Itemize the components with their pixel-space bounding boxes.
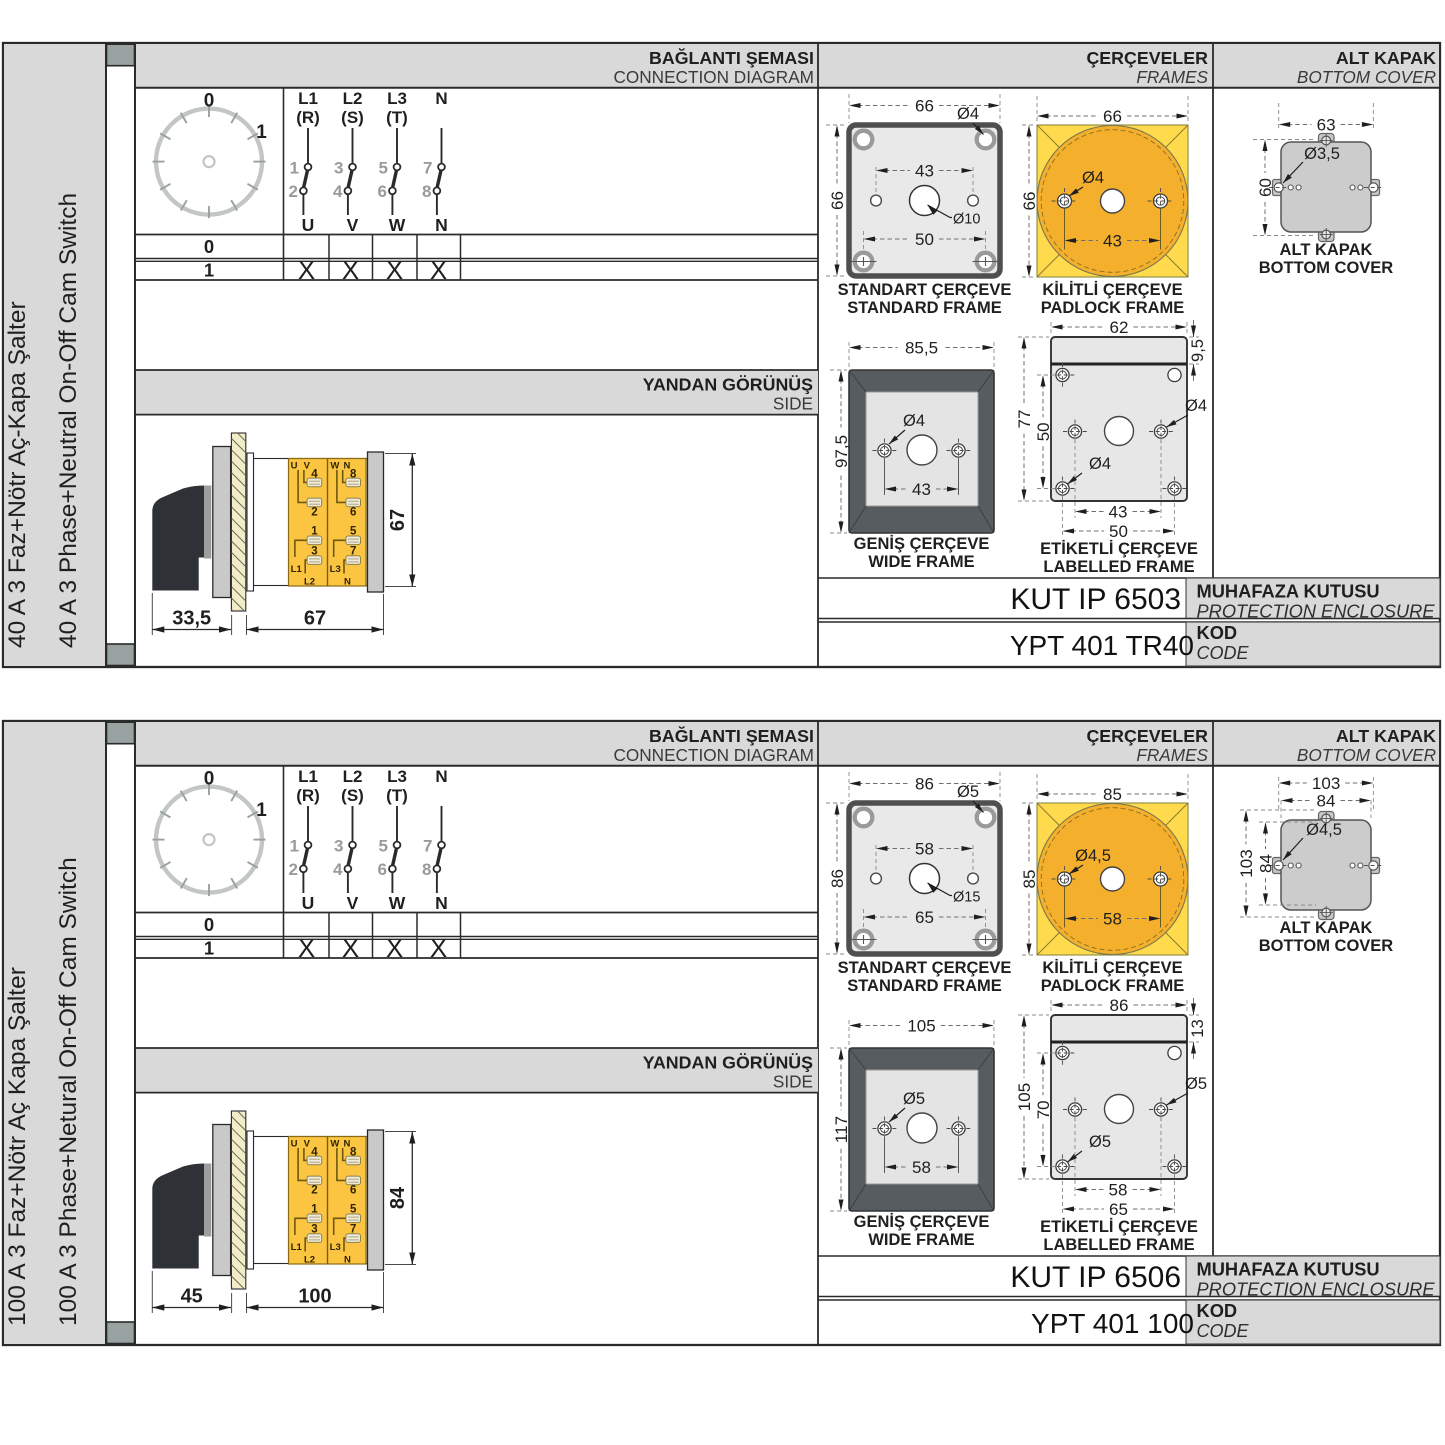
svg-text:(S): (S) [341, 108, 364, 127]
svg-text:U: U [302, 215, 315, 235]
svg-text:Ø4: Ø4 [1082, 169, 1104, 187]
svg-text:L3: L3 [330, 564, 341, 575]
svg-text:4: 4 [311, 1147, 318, 1159]
svg-text:66: 66 [915, 97, 934, 116]
svg-text:U: U [291, 1139, 298, 1150]
svg-text:Ø4,5: Ø4,5 [1075, 847, 1111, 865]
svg-text:L1: L1 [298, 89, 318, 108]
svg-text:70: 70 [1034, 1100, 1053, 1119]
svg-text:MUHAFAZA KUTUSU: MUHAFAZA KUTUSU [1197, 581, 1380, 602]
svg-text:105: 105 [907, 1017, 935, 1036]
svg-text:6: 6 [378, 860, 387, 879]
svg-text:L1: L1 [298, 767, 318, 786]
svg-text:KOD: KOD [1197, 622, 1238, 643]
svg-text:43: 43 [912, 480, 931, 499]
svg-text:3: 3 [311, 546, 317, 558]
svg-text:67: 67 [387, 509, 409, 531]
svg-text:X: X [386, 933, 403, 963]
svg-text:50: 50 [915, 230, 934, 249]
svg-text:BOTTOM COVER: BOTTOM COVER [1259, 937, 1394, 955]
svg-text:KİLİTLİ ÇERÇEVE: KİLİTLİ ÇERÇEVE [1042, 959, 1182, 977]
svg-text:L2: L2 [304, 1255, 315, 1266]
svg-text:8: 8 [350, 469, 357, 481]
svg-text:FRAMES: FRAMES [1136, 745, 1208, 765]
svg-text:58: 58 [912, 1158, 931, 1177]
svg-text:Ø10: Ø10 [953, 212, 980, 228]
svg-text:ALT KAPAK: ALT KAPAK [1280, 919, 1373, 937]
svg-text:V: V [304, 461, 311, 472]
svg-text:CONNECTION DIAGRAM: CONNECTION DIAGRAM [613, 745, 814, 765]
svg-text:5: 5 [379, 837, 388, 856]
svg-text:3: 3 [311, 1224, 317, 1236]
svg-text:MUHAFAZA KUTUSU: MUHAFAZA KUTUSU [1197, 1259, 1380, 1280]
svg-text:43: 43 [1103, 232, 1122, 251]
svg-text:40 A 3 Phase+Neutral On-Off Ca: 40 A 3 Phase+Neutral On-Off Cam Switch [55, 193, 82, 648]
svg-text:V: V [347, 893, 359, 913]
svg-text:6: 6 [350, 1185, 356, 1197]
svg-text:105: 105 [1015, 1083, 1034, 1111]
svg-text:WIDE FRAME: WIDE FRAME [868, 1231, 974, 1249]
svg-text:100 A 3 Faz+Nötr Aç Kapa Şalte: 100 A 3 Faz+Nötr Aç Kapa Şalter [4, 967, 31, 1326]
svg-text:8: 8 [350, 1147, 357, 1159]
svg-text:LABELLED FRAME: LABELLED FRAME [1043, 1236, 1194, 1254]
svg-text:84: 84 [387, 1186, 409, 1209]
svg-text:(R): (R) [296, 108, 320, 127]
svg-text:100: 100 [298, 1286, 331, 1308]
svg-text:1: 1 [290, 837, 299, 856]
svg-text:X: X [386, 255, 403, 285]
svg-text:N: N [435, 89, 447, 108]
svg-text:KİLİTLİ ÇERÇEVE: KİLİTLİ ÇERÇEVE [1042, 281, 1182, 299]
svg-text:8: 8 [422, 182, 431, 201]
svg-text:58: 58 [1109, 1181, 1128, 1200]
svg-text:ETİKETLİ ÇERÇEVE: ETİKETLİ ÇERÇEVE [1040, 540, 1198, 558]
svg-text:1: 1 [204, 260, 214, 281]
svg-text:X: X [342, 933, 359, 963]
svg-text:L2: L2 [343, 89, 363, 108]
svg-text:3: 3 [334, 159, 343, 178]
svg-text:43: 43 [1109, 503, 1128, 522]
svg-text:KUT IP 6503: KUT IP 6503 [1010, 583, 1181, 616]
svg-text:Ø4: Ø4 [1089, 455, 1111, 473]
svg-text:4: 4 [333, 860, 343, 879]
svg-text:ALT KAPAK: ALT KAPAK [1336, 726, 1436, 746]
svg-text:(T): (T) [386, 786, 408, 805]
svg-text:7: 7 [350, 1224, 356, 1236]
svg-text:117: 117 [832, 1116, 851, 1143]
svg-text:L3: L3 [387, 767, 407, 786]
svg-text:84: 84 [1257, 854, 1276, 873]
svg-text:N: N [344, 577, 351, 588]
svg-text:4: 4 [333, 182, 343, 201]
svg-text:67: 67 [304, 608, 326, 630]
svg-text:YPT 401 TR40: YPT 401 TR40 [1010, 630, 1194, 661]
svg-text:(S): (S) [341, 786, 364, 805]
svg-text:1: 1 [256, 800, 267, 821]
svg-text:KUT IP 6506: KUT IP 6506 [1010, 1261, 1181, 1294]
svg-text:L3: L3 [387, 89, 407, 108]
svg-text:13: 13 [1189, 1019, 1207, 1037]
svg-text:100 A 3 Phase+Netural On-Off C: 100 A 3 Phase+Netural On-Off Cam Switch [55, 857, 82, 1326]
svg-text:X: X [430, 933, 447, 963]
svg-text:GENİŞ ÇERÇEVE: GENİŞ ÇERÇEVE [854, 1213, 990, 1231]
svg-text:ÇERÇEVELER: ÇERÇEVELER [1086, 726, 1208, 746]
svg-text:65: 65 [915, 908, 934, 927]
svg-text:Ø5: Ø5 [957, 783, 979, 801]
svg-text:X: X [298, 255, 315, 285]
svg-text:BOTTOM COVER: BOTTOM COVER [1297, 67, 1436, 87]
svg-text:STANDART ÇERÇEVE: STANDART ÇERÇEVE [838, 281, 1012, 299]
svg-text:ALT KAPAK: ALT KAPAK [1280, 241, 1373, 259]
svg-text:45: 45 [181, 1286, 203, 1308]
svg-text:0: 0 [204, 914, 214, 935]
svg-text:66: 66 [828, 191, 847, 210]
svg-text:L2: L2 [343, 767, 363, 786]
svg-text:STANDART ÇERÇEVE: STANDART ÇERÇEVE [838, 959, 1012, 977]
svg-text:65: 65 [1109, 1200, 1128, 1219]
svg-text:7: 7 [423, 837, 432, 856]
svg-text:43: 43 [915, 162, 934, 181]
svg-text:63: 63 [1317, 116, 1336, 135]
svg-text:5: 5 [350, 1204, 357, 1216]
svg-text:Ø4: Ø4 [903, 412, 925, 430]
svg-text:Ø5: Ø5 [1185, 1075, 1207, 1093]
svg-text:2: 2 [289, 182, 298, 201]
svg-text:86: 86 [1110, 996, 1129, 1015]
svg-text:3: 3 [334, 837, 343, 856]
svg-text:L1: L1 [291, 564, 303, 575]
svg-text:6: 6 [350, 507, 356, 519]
svg-text:66: 66 [1103, 107, 1122, 126]
svg-text:L3: L3 [330, 1242, 341, 1253]
svg-text:7: 7 [423, 159, 432, 178]
svg-text:9,5: 9,5 [1189, 339, 1207, 362]
svg-text:W: W [330, 461, 339, 472]
svg-text:BAĞLANTI ŞEMASI: BAĞLANTI ŞEMASI [649, 725, 814, 746]
svg-text:33,5: 33,5 [172, 608, 211, 630]
svg-text:4: 4 [311, 469, 318, 481]
svg-text:STANDARD FRAME: STANDARD FRAME [847, 977, 1002, 995]
svg-text:SIDE: SIDE [773, 1072, 813, 1092]
svg-text:40 A 3 Faz+Nötr Aç-Kapa Şalter: 40 A 3 Faz+Nötr Aç-Kapa Şalter [4, 301, 31, 648]
svg-text:N: N [435, 893, 448, 913]
svg-text:60: 60 [1256, 178, 1275, 197]
svg-text:86: 86 [828, 869, 847, 888]
svg-text:N: N [435, 767, 447, 786]
svg-text:5: 5 [379, 159, 388, 178]
svg-text:X: X [298, 933, 315, 963]
svg-text:BOTTOM COVER: BOTTOM COVER [1259, 259, 1394, 277]
svg-text:W: W [389, 893, 406, 913]
svg-text:U: U [302, 893, 315, 913]
svg-text:58: 58 [915, 840, 934, 859]
svg-text:W: W [389, 215, 406, 235]
svg-text:50: 50 [1034, 422, 1053, 441]
svg-text:YANDAN GÖRÜNÜŞ: YANDAN GÖRÜNÜŞ [643, 1053, 813, 1073]
svg-text:Ø15: Ø15 [953, 890, 980, 906]
svg-text:50: 50 [1109, 522, 1128, 541]
svg-text:Ø4: Ø4 [1185, 397, 1207, 415]
svg-text:L1: L1 [291, 1242, 303, 1253]
svg-text:7: 7 [350, 546, 356, 558]
svg-text:BOTTOM COVER: BOTTOM COVER [1297, 745, 1436, 765]
svg-text:Ø3,5: Ø3,5 [1304, 145, 1340, 163]
svg-text:0: 0 [204, 236, 214, 257]
svg-text:L2: L2 [304, 577, 315, 588]
svg-text:Ø4,5: Ø4,5 [1306, 821, 1342, 839]
svg-text:CODE: CODE [1197, 643, 1250, 663]
svg-text:U: U [291, 461, 298, 472]
svg-text:Ø5: Ø5 [1089, 1133, 1111, 1151]
svg-text:77: 77 [1015, 410, 1034, 429]
svg-text:GENİŞ ÇERÇEVE: GENİŞ ÇERÇEVE [854, 535, 990, 553]
svg-text:1: 1 [311, 1204, 318, 1216]
svg-text:YANDAN GÖRÜNÜŞ: YANDAN GÖRÜNÜŞ [643, 375, 813, 395]
svg-text:5: 5 [350, 526, 357, 538]
svg-text:2: 2 [289, 860, 298, 879]
svg-text:V: V [347, 215, 359, 235]
svg-text:BAĞLANTI ŞEMASI: BAĞLANTI ŞEMASI [649, 47, 814, 68]
svg-text:STANDARD FRAME: STANDARD FRAME [847, 299, 1002, 317]
svg-text:8: 8 [422, 860, 431, 879]
svg-text:PADLOCK FRAME: PADLOCK FRAME [1041, 299, 1185, 317]
svg-text:97,5: 97,5 [832, 435, 851, 468]
svg-text:N: N [435, 215, 448, 235]
svg-text:1: 1 [256, 122, 267, 143]
svg-text:PADLOCK FRAME: PADLOCK FRAME [1041, 977, 1185, 995]
svg-text:66: 66 [1020, 192, 1039, 211]
svg-text:CONNECTION DIAGRAM: CONNECTION DIAGRAM [613, 67, 814, 87]
svg-text:WIDE FRAME: WIDE FRAME [868, 553, 974, 571]
svg-text:ÇERÇEVELER: ÇERÇEVELER [1086, 48, 1208, 68]
svg-text:X: X [342, 255, 359, 285]
svg-text:LABELLED FRAME: LABELLED FRAME [1043, 558, 1194, 576]
svg-text:ETİKETLİ ÇERÇEVE: ETİKETLİ ÇERÇEVE [1040, 1218, 1198, 1236]
svg-text:X: X [430, 255, 447, 285]
svg-text:(R): (R) [296, 786, 320, 805]
svg-text:85,5: 85,5 [905, 339, 938, 358]
svg-text:62: 62 [1110, 318, 1129, 337]
svg-text:1: 1 [290, 159, 299, 178]
svg-text:FRAMES: FRAMES [1136, 67, 1208, 87]
svg-text:V: V [304, 1139, 311, 1150]
svg-text:(T): (T) [386, 108, 408, 127]
svg-text:1: 1 [311, 526, 318, 538]
svg-text:58: 58 [1103, 910, 1122, 929]
svg-text:W: W [330, 1139, 339, 1150]
svg-text:YPT 401 100: YPT 401 100 [1031, 1308, 1194, 1339]
svg-text:Ø4: Ø4 [957, 105, 979, 123]
svg-text:2: 2 [311, 507, 317, 519]
svg-text:0: 0 [204, 91, 215, 112]
svg-text:Ø5: Ø5 [903, 1090, 925, 1108]
svg-text:N: N [344, 1255, 351, 1266]
svg-text:ALT KAPAK: ALT KAPAK [1336, 48, 1436, 68]
svg-text:103: 103 [1237, 849, 1256, 877]
svg-text:KOD: KOD [1197, 1300, 1238, 1321]
svg-text:86: 86 [915, 775, 934, 794]
svg-text:1: 1 [204, 938, 214, 959]
svg-text:6: 6 [378, 182, 387, 201]
svg-text:0: 0 [204, 769, 215, 790]
svg-text:85: 85 [1020, 870, 1039, 889]
svg-text:2: 2 [311, 1185, 317, 1197]
svg-text:SIDE: SIDE [773, 394, 813, 414]
svg-text:103: 103 [1312, 774, 1340, 793]
svg-text:CODE: CODE [1197, 1321, 1250, 1341]
svg-text:84: 84 [1317, 792, 1336, 811]
svg-text:85: 85 [1103, 785, 1122, 804]
